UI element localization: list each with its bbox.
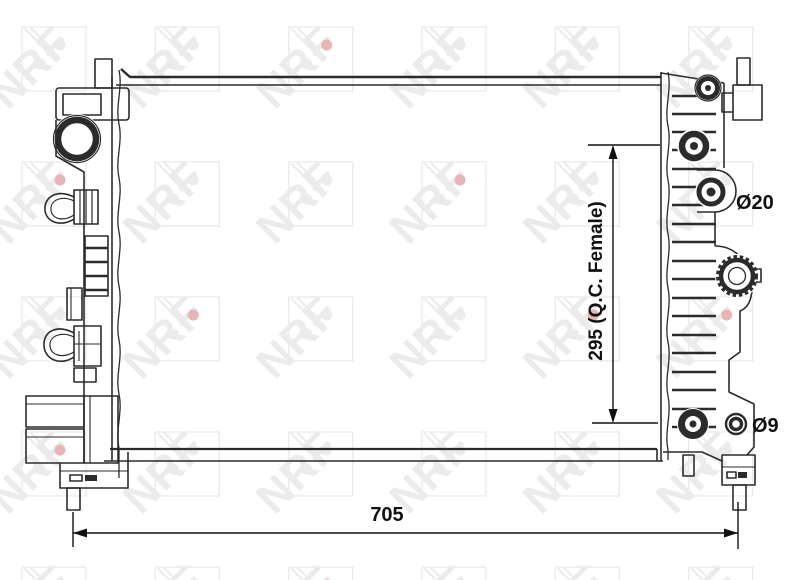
radiator-diagram-canvas: NRF: [0, 0, 800, 580]
arrow-down-icon: [609, 409, 618, 423]
right-top-mounting-pin: [737, 58, 750, 85]
port-diameter-20-label: Ø20: [736, 192, 774, 214]
port-diameter-9-label: Ø9: [752, 415, 779, 437]
arrow-left-icon: [73, 529, 87, 538]
radiator-core: [104, 69, 669, 478]
watermark-layer: [0, 17, 753, 580]
right-bottom-pin: [733, 485, 746, 510]
right-top-bracket: [733, 85, 762, 120]
width-dimension-label: 705: [370, 504, 403, 526]
ladder-bracket: [85, 236, 108, 296]
radiator-drawing: [26, 58, 762, 510]
arrow-right-icon: [724, 529, 738, 538]
left-bottom-pin: [67, 488, 80, 510]
height-dimension-label: 295 (Q.C. Female): [586, 201, 607, 360]
lower-clip: [74, 326, 101, 366]
arrow-up-icon: [609, 145, 618, 159]
left-top-mounting-pin: [95, 59, 112, 88]
radiator-technical-drawing-page: NRF: [0, 0, 800, 580]
